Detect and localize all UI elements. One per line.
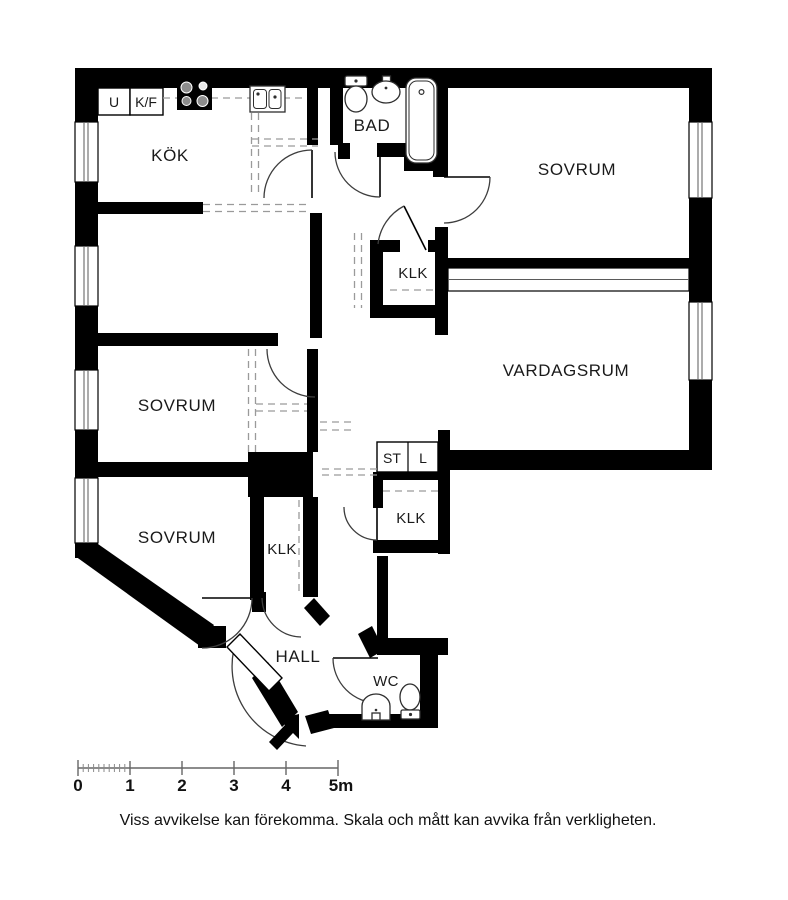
stove-icon — [177, 78, 212, 110]
corridor-dash — [355, 233, 362, 308]
bedroom-top-door — [444, 177, 490, 223]
wall-room-right — [310, 213, 322, 338]
wall-closet-upper-top — [370, 240, 400, 252]
bathtub-icon — [406, 78, 437, 163]
bedroom-mid-wardrobe-dash — [256, 404, 307, 411]
wardrobe-strip — [448, 268, 689, 291]
closet-lower-door — [262, 598, 301, 637]
room-label-closet-upper: KLK — [398, 265, 428, 282]
wall-closet-lower-left — [250, 497, 264, 600]
wall-diagonal-upper — [75, 544, 214, 646]
wall-hall-stub — [304, 598, 330, 626]
window — [75, 370, 98, 430]
wall-closet-upper-top2 — [428, 240, 447, 252]
wall-bedroom-mid-top — [75, 333, 278, 346]
scale-label-0: 0 — [73, 776, 82, 795]
scale-label-2: 2 — [177, 776, 186, 795]
wall-closet-upper-bottom — [370, 305, 447, 318]
wall-wc-top — [377, 638, 448, 655]
room-label-bedroom-mid: SOVRUM — [138, 396, 216, 415]
wall-block — [248, 452, 313, 497]
wall-livingroom-bottom — [437, 450, 712, 470]
label-linen-closet: L — [419, 450, 427, 466]
room-label-closet-mid: KLK — [396, 510, 426, 527]
room-label-closet-lower: KLK — [267, 541, 297, 558]
wall-left — [75, 68, 98, 122]
disclaimer-text: Viss avvikelse kan förekomma. Skala och … — [120, 811, 657, 829]
wall-corridor-left — [307, 349, 318, 452]
window — [689, 122, 712, 198]
room-label-bedroom-top: SOVRUM — [538, 160, 616, 179]
room-label-wc: WC — [373, 673, 399, 690]
toilet-icon — [345, 76, 367, 112]
window — [75, 478, 98, 543]
wall-bath-left — [330, 88, 343, 145]
room-label-hall: HALL — [276, 647, 321, 666]
room-labels: KÖK BAD SOVRUM VARDAGSRUM SOVRUM SOVRUM … — [109, 94, 629, 690]
room-label-kitchen: KÖK — [151, 146, 189, 165]
window — [75, 122, 98, 182]
room-label-bedroom-bottom: SOVRUM — [138, 528, 216, 547]
wall-bath-jamb — [338, 143, 350, 159]
livingroom-opening-dash — [320, 422, 356, 430]
scale-label-4: 4 — [281, 776, 291, 795]
scale-label-3: 3 — [229, 776, 238, 795]
washbasin-icon — [362, 694, 390, 720]
wall-hall-wc — [377, 556, 388, 640]
window — [75, 246, 98, 306]
room-label-living-room: VARDAGSRUM — [503, 361, 630, 380]
corridor-st-dash — [322, 469, 377, 475]
floor-plan: KÖK BAD SOVRUM VARDAGSRUM SOVRUM SOVRUM … — [0, 0, 788, 900]
kitchen-door — [264, 150, 312, 198]
wall-right — [689, 68, 712, 122]
wall-closet-mid-left — [373, 480, 383, 508]
label-cleaning-closet: ST — [383, 450, 401, 466]
label-fridge-freezer: K/F — [135, 94, 157, 110]
kitchen-opening-dash — [203, 205, 310, 212]
floor-plan-page: KÖK BAD SOVRUM VARDAGSRUM SOVRUM SOVRUM … — [0, 0, 788, 900]
sink-icon — [250, 86, 285, 112]
kitchen-wardrobe-dash — [252, 113, 259, 197]
wall-kitchen-right — [307, 88, 318, 145]
wall-wc-right — [420, 654, 438, 728]
label-oven-unit: U — [109, 94, 119, 110]
scale-label-1: 1 — [125, 776, 134, 795]
wall-bath-bottom — [377, 143, 408, 157]
scale-label-5m: 5m — [329, 776, 354, 795]
wall-closet-lower-right — [303, 497, 318, 597]
wall-right — [689, 198, 712, 302]
toilet-icon — [400, 684, 420, 719]
wall-kitchen-bottom — [75, 202, 203, 214]
closet-mid-door — [344, 507, 377, 540]
bedroom-mid-wardrobe-dash — [249, 349, 256, 452]
wall-bedroom-mid-bottom — [75, 462, 250, 477]
wall-closet-mid-bottom — [373, 540, 450, 553]
wall-closet-mid-top — [373, 472, 450, 480]
wall-bedroom-livingroom — [448, 258, 689, 268]
scale-bar: 0 1 2 3 4 5m — [73, 760, 353, 795]
window — [689, 302, 712, 380]
wall-corridor-right-lower — [438, 430, 450, 554]
room-label-bathroom: BAD — [354, 116, 391, 135]
